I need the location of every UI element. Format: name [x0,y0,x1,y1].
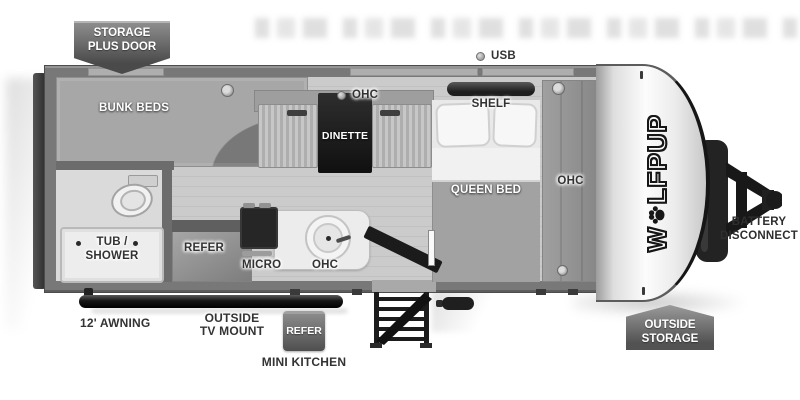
tub-shower-label-line2: SHOWER [62,250,162,263]
window-front [482,68,574,76]
storage-badge-line1: STORAGE [94,27,151,41]
storage-badge-line2: PLUS DOOR [88,41,156,55]
outside-speaker [442,297,474,310]
stabilizer-jack [568,289,578,295]
bunk-beds-label: BUNK BEDS [99,102,169,115]
wardrobe-ohc-label: OHC [542,175,599,188]
entry-steps [368,285,440,349]
bench-latch [380,110,400,116]
usb-label: USB [491,50,516,63]
bench-latch [287,110,307,116]
queen-bed-sheet [432,148,540,182]
watermark-smudge [255,18,800,38]
awning-tube [79,295,343,308]
paw-print-icon [647,205,667,225]
logo-letter-w: W [642,226,673,252]
bathroom-wall [56,161,174,170]
stabilizer-jack [536,289,546,295]
window-dinette [350,68,478,76]
shelf-label: SHELF [447,98,535,111]
stove-knob [259,203,271,208]
ceiling-speaker-icon [557,265,568,276]
brand-logo-wolfpup: W LFPUP [638,103,676,263]
shadow-steps [432,290,516,332]
micro-label: MICRO [242,259,281,272]
outside-tv-mount-label: OUTSIDE TV MOUNT [196,312,268,339]
battery-line1: BATTERY [718,216,800,230]
tv-mount-line2: TV MOUNT [196,325,268,338]
queen-bed-label: QUEEN BED [432,184,540,197]
stabilizer-jack [352,289,362,295]
ceiling-speaker-icon [221,84,234,97]
entry-door-jamb [428,230,435,266]
awning-label: 12' AWNING [80,317,150,330]
stove-knob [243,203,255,208]
ohc-marker-dot [337,91,346,100]
tub-shower-label-line1: TUB / [62,236,162,249]
usb-marker-dot [476,52,485,61]
outside-storage-line1: OUTSIDE [644,319,695,333]
shelf-bar [447,82,535,96]
stove-cooktop [240,207,278,249]
outside-refer-badge: REFER [283,311,325,351]
kitchen-ohc-label: OHC [312,259,338,272]
marker-light [642,287,645,295]
dinette-label: DINETTE [314,131,376,143]
mini-kitchen-label: MINI KITCHEN [260,356,348,369]
outside-refer-label: REFER [286,325,322,337]
entry-steps-graphic [368,285,440,349]
floorplan-canvas: BUNK BEDS TUB / SHOWER REFER MICRO OHC D… [0,0,800,400]
battery-disconnect-label: BATTERY DISCONNECT [718,216,800,243]
sink-drain [326,236,331,241]
ceiling-speaker-icon [552,82,565,95]
dinette-ohc-label: OHC [352,89,378,102]
outside-storage-line2: STORAGE [642,333,699,347]
marker-light [640,71,643,79]
refer-label: REFER [184,242,224,255]
oven-handle [242,251,272,256]
entry-door-threshold [372,280,436,292]
logo-letters-lfpup: LFPUP [642,114,673,204]
battery-line2: DISCONNECT [718,230,800,244]
